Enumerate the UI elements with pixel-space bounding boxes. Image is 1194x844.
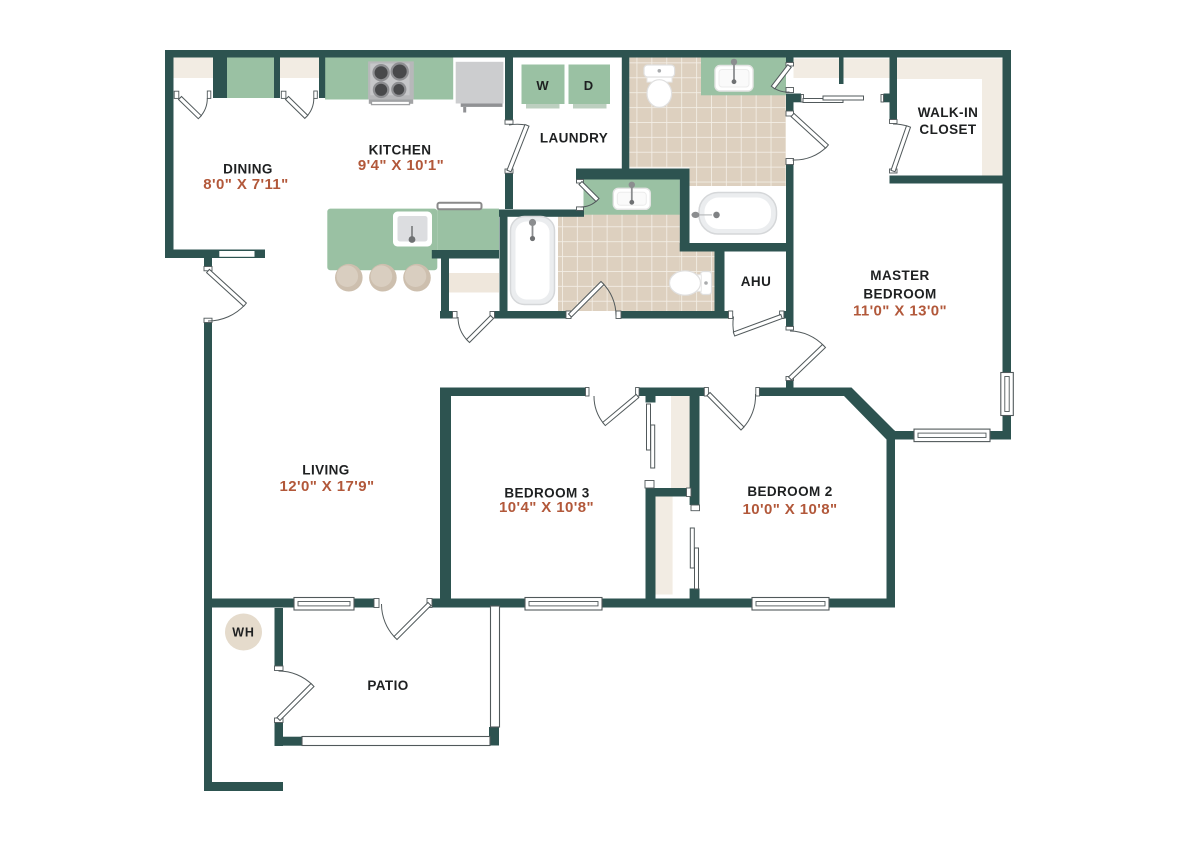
- svg-text:8'0" X 7'11": 8'0" X 7'11": [203, 176, 288, 193]
- svg-text:11'0" X 13'0": 11'0" X 13'0": [853, 303, 947, 320]
- svg-text:WH: WH: [232, 625, 254, 639]
- svg-text:CLOSET: CLOSET: [919, 122, 977, 137]
- svg-text:MASTER: MASTER: [870, 268, 929, 283]
- svg-text:12'0" X 17'9": 12'0" X 17'9": [280, 478, 375, 495]
- svg-text:DINING: DINING: [223, 162, 273, 177]
- svg-text:WALK-IN: WALK-IN: [918, 105, 979, 120]
- svg-text:9'4" X 10'1": 9'4" X 10'1": [358, 157, 444, 174]
- svg-text:KITCHEN: KITCHEN: [369, 143, 432, 158]
- svg-text:W: W: [536, 78, 549, 93]
- svg-text:PATIO: PATIO: [367, 678, 408, 693]
- svg-text:LAUNDRY: LAUNDRY: [540, 131, 608, 146]
- svg-text:LIVING: LIVING: [302, 463, 349, 478]
- svg-text:10'0" X 10'8": 10'0" X 10'8": [743, 501, 838, 518]
- svg-text:BEDROOM 2: BEDROOM 2: [747, 484, 832, 499]
- svg-text:AHU: AHU: [741, 274, 771, 289]
- svg-text:D: D: [584, 78, 594, 93]
- svg-text:10'4" X 10'8": 10'4" X 10'8": [499, 499, 594, 516]
- svg-text:BEDROOM: BEDROOM: [863, 287, 936, 302]
